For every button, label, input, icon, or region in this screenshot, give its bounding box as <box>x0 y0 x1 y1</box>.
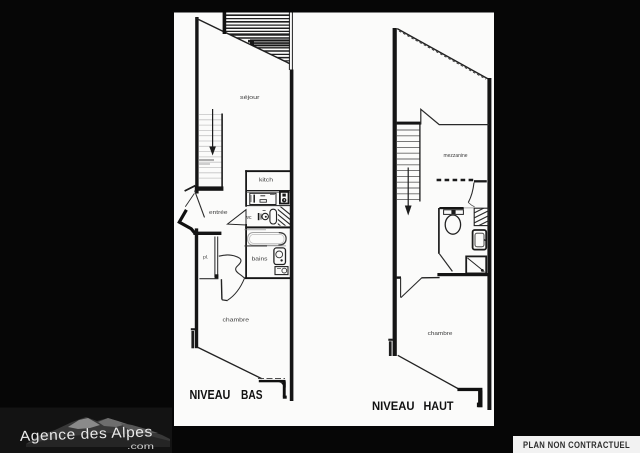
svg-text:chambre: chambre <box>223 318 250 324</box>
svg-text:entrée: entrée <box>209 210 228 216</box>
svg-text:kitch: kitch <box>259 177 273 183</box>
svg-text:NIVEAU: NIVEAU <box>190 387 231 402</box>
svg-text:HAUT: HAUT <box>424 399 454 413</box>
svg-text:chambre: chambre <box>428 331 453 337</box>
svg-text:mezzanine: mezzanine <box>444 153 468 159</box>
svg-text:NIVEAU: NIVEAU <box>372 399 415 413</box>
svg-text:bains: bains <box>252 256 269 262</box>
svg-text:pl.: pl. <box>203 255 209 260</box>
svg-text:PLAN NON CONTRACTUEL: PLAN NON CONTRACTUEL <box>523 440 630 450</box>
svg-text:.com: .com <box>127 442 155 451</box>
svg-text:séjour: séjour <box>240 95 260 101</box>
svg-text:BAS: BAS <box>241 387 263 402</box>
